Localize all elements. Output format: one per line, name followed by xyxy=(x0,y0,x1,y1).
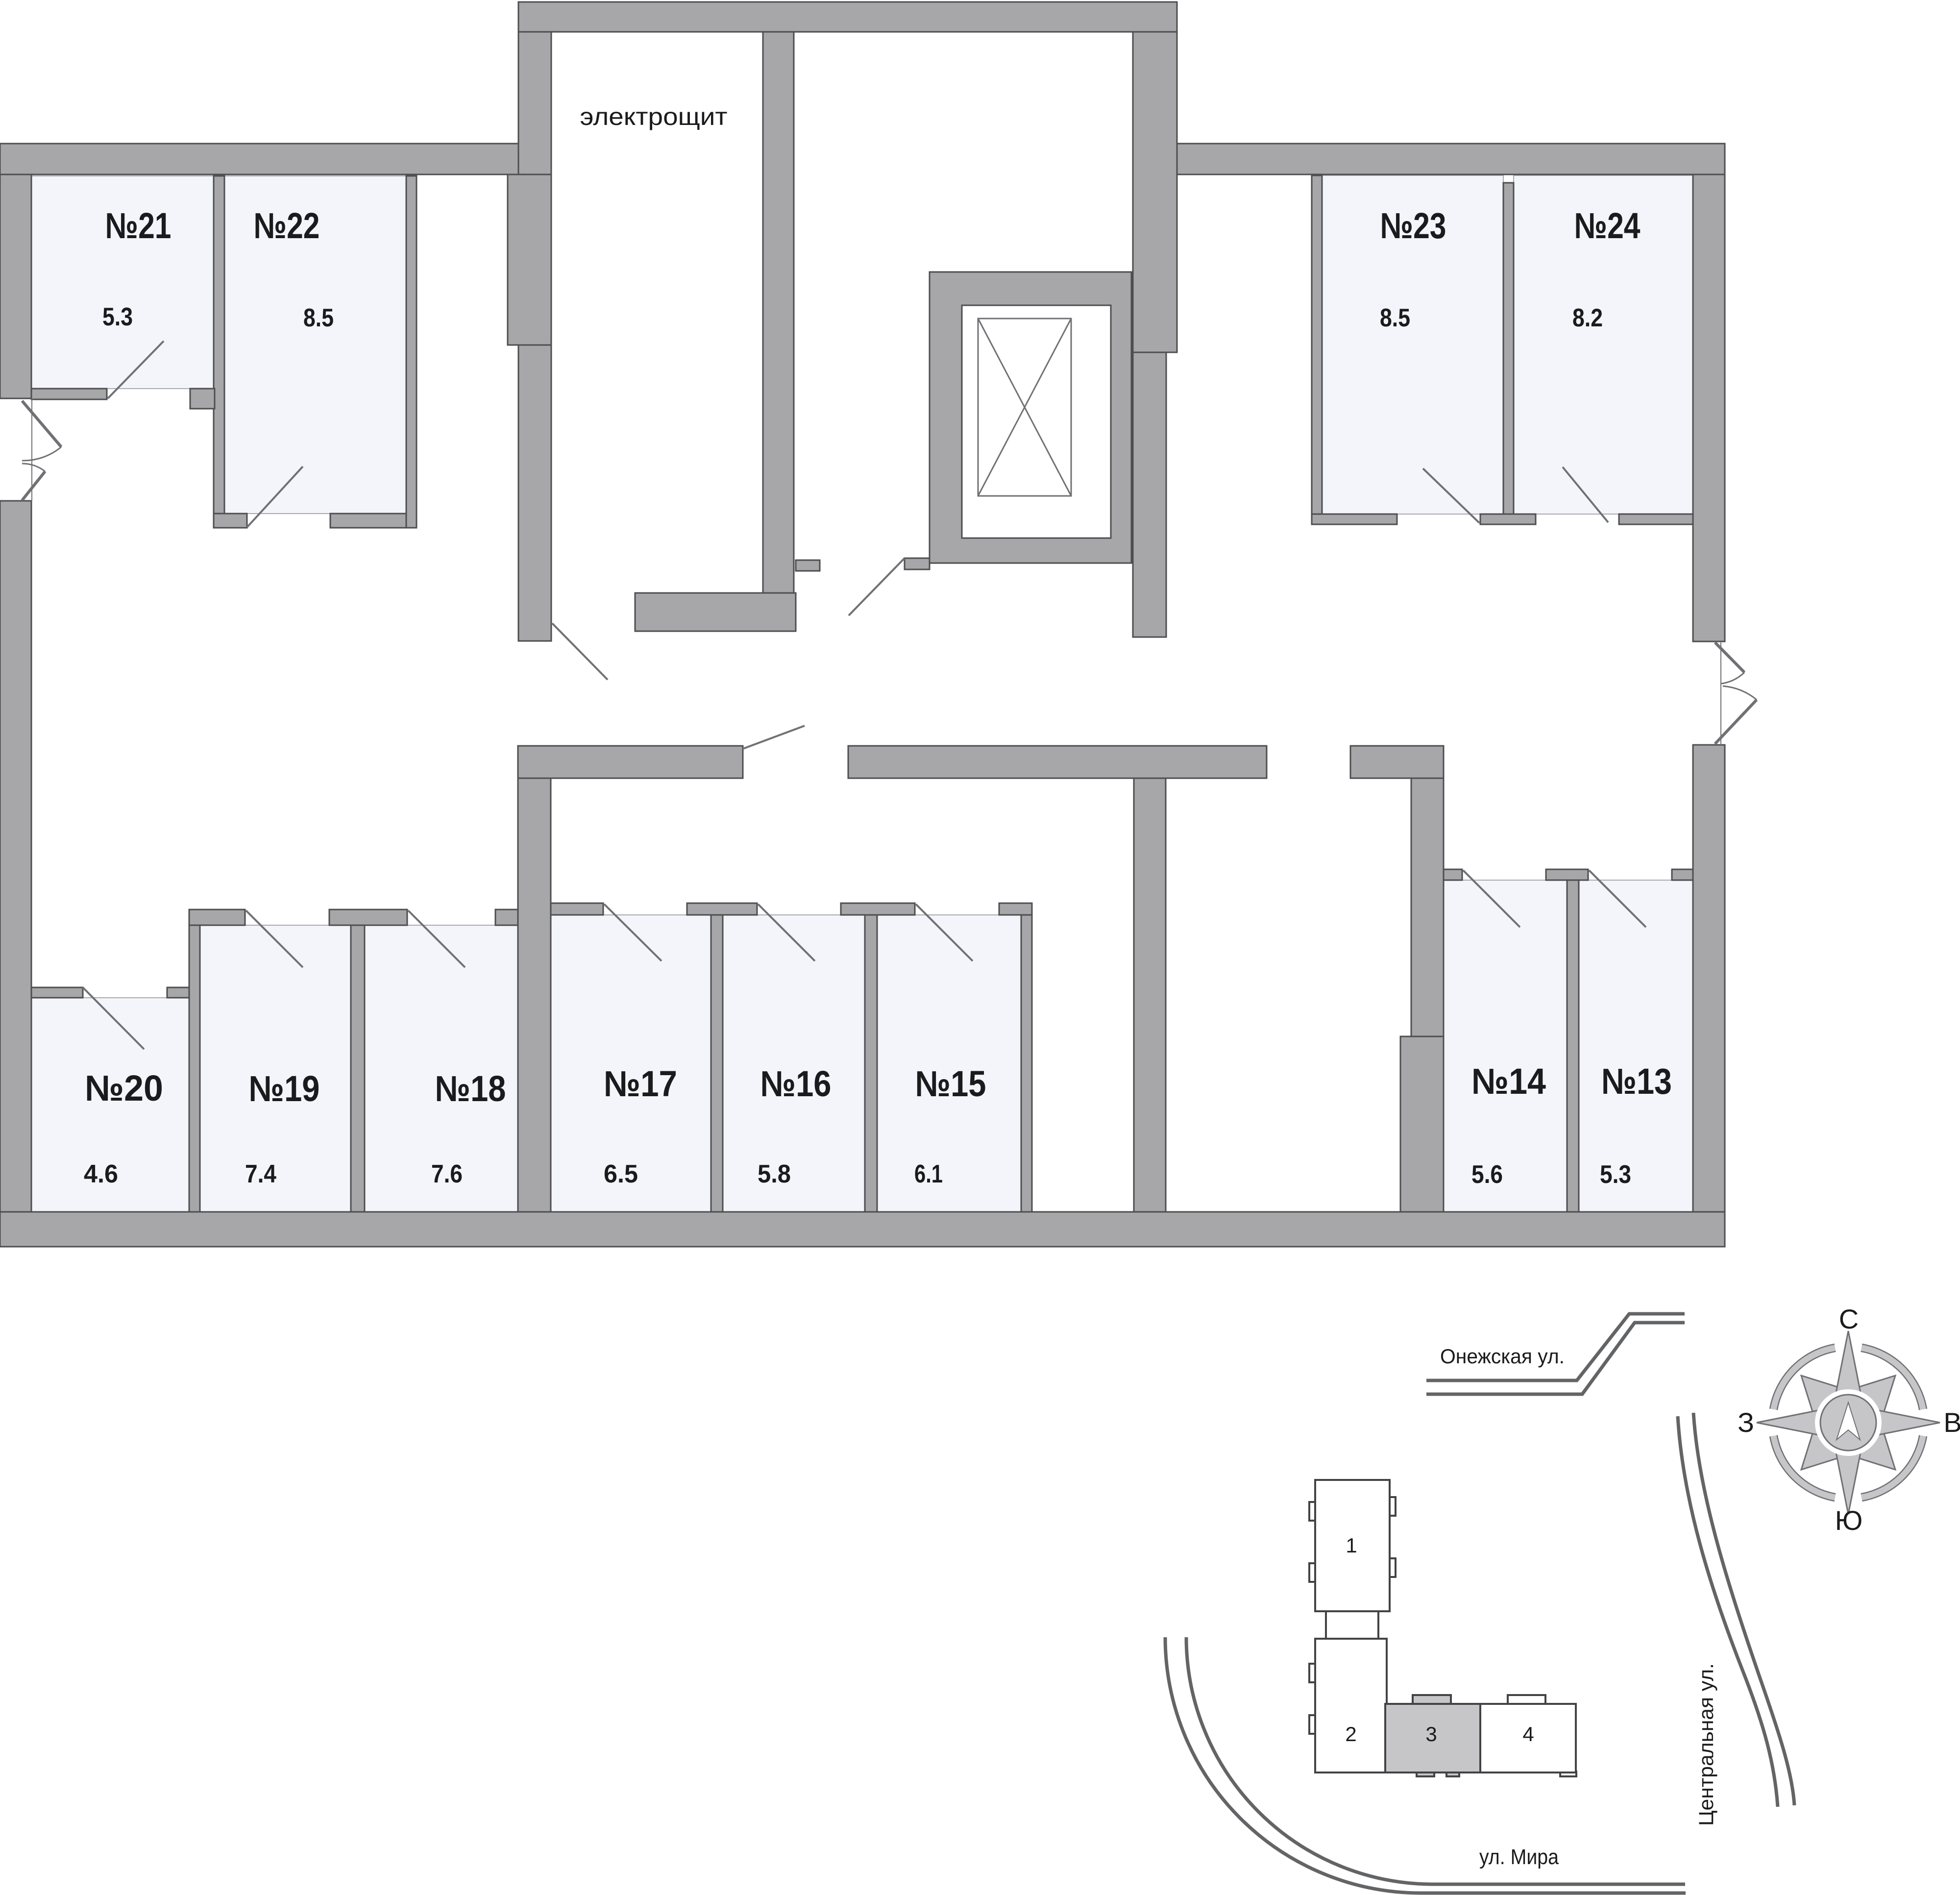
svg-text:№19: №19 xyxy=(249,1068,320,1109)
svg-text:№22: №22 xyxy=(254,205,320,246)
svg-text:7.6: 7.6 xyxy=(431,1160,463,1188)
svg-text:8.5: 8.5 xyxy=(1380,304,1410,332)
svg-text:№13: №13 xyxy=(1601,1061,1672,1102)
svg-text:С: С xyxy=(1839,1304,1859,1334)
svg-text:1: 1 xyxy=(1346,1534,1357,1557)
svg-text:Онежская ул.: Онежская ул. xyxy=(1440,1345,1565,1368)
svg-text:№21: №21 xyxy=(105,205,171,246)
svg-text:6.1: 6.1 xyxy=(914,1160,943,1188)
svg-text:6.5: 6.5 xyxy=(604,1160,638,1188)
svg-text:электрощит: электрощит xyxy=(580,103,728,130)
svg-text:№23: №23 xyxy=(1380,205,1446,246)
svg-text:ул. Мира: ул. Мира xyxy=(1479,1845,1559,1869)
svg-text:4.6: 4.6 xyxy=(84,1160,118,1188)
svg-text:З: З xyxy=(1738,1407,1754,1438)
svg-text:5.3: 5.3 xyxy=(102,303,133,331)
svg-text:№20: №20 xyxy=(85,1068,163,1108)
svg-text:4: 4 xyxy=(1522,1723,1534,1746)
svg-text:3: 3 xyxy=(1425,1723,1437,1746)
svg-text:8.2: 8.2 xyxy=(1572,304,1603,332)
svg-text:№18: №18 xyxy=(435,1068,506,1109)
svg-text:5.6: 5.6 xyxy=(1471,1160,1503,1189)
svg-text:В: В xyxy=(1943,1407,1960,1438)
svg-text:№16: №16 xyxy=(760,1063,832,1104)
svg-text:5.3: 5.3 xyxy=(1600,1160,1631,1189)
svg-text:2: 2 xyxy=(1345,1723,1356,1746)
svg-text:Ю: Ю xyxy=(1835,1505,1863,1536)
svg-text:№17: №17 xyxy=(604,1063,677,1104)
svg-text:7.4: 7.4 xyxy=(245,1160,276,1188)
svg-text:№24: №24 xyxy=(1574,205,1641,246)
svg-text:Центральная ул.: Центральная ул. xyxy=(1694,1663,1717,1826)
svg-text:8.5: 8.5 xyxy=(303,304,334,332)
svg-text:№14: №14 xyxy=(1471,1061,1546,1102)
svg-text:№15: №15 xyxy=(915,1063,986,1104)
svg-text:5.8: 5.8 xyxy=(758,1160,791,1188)
